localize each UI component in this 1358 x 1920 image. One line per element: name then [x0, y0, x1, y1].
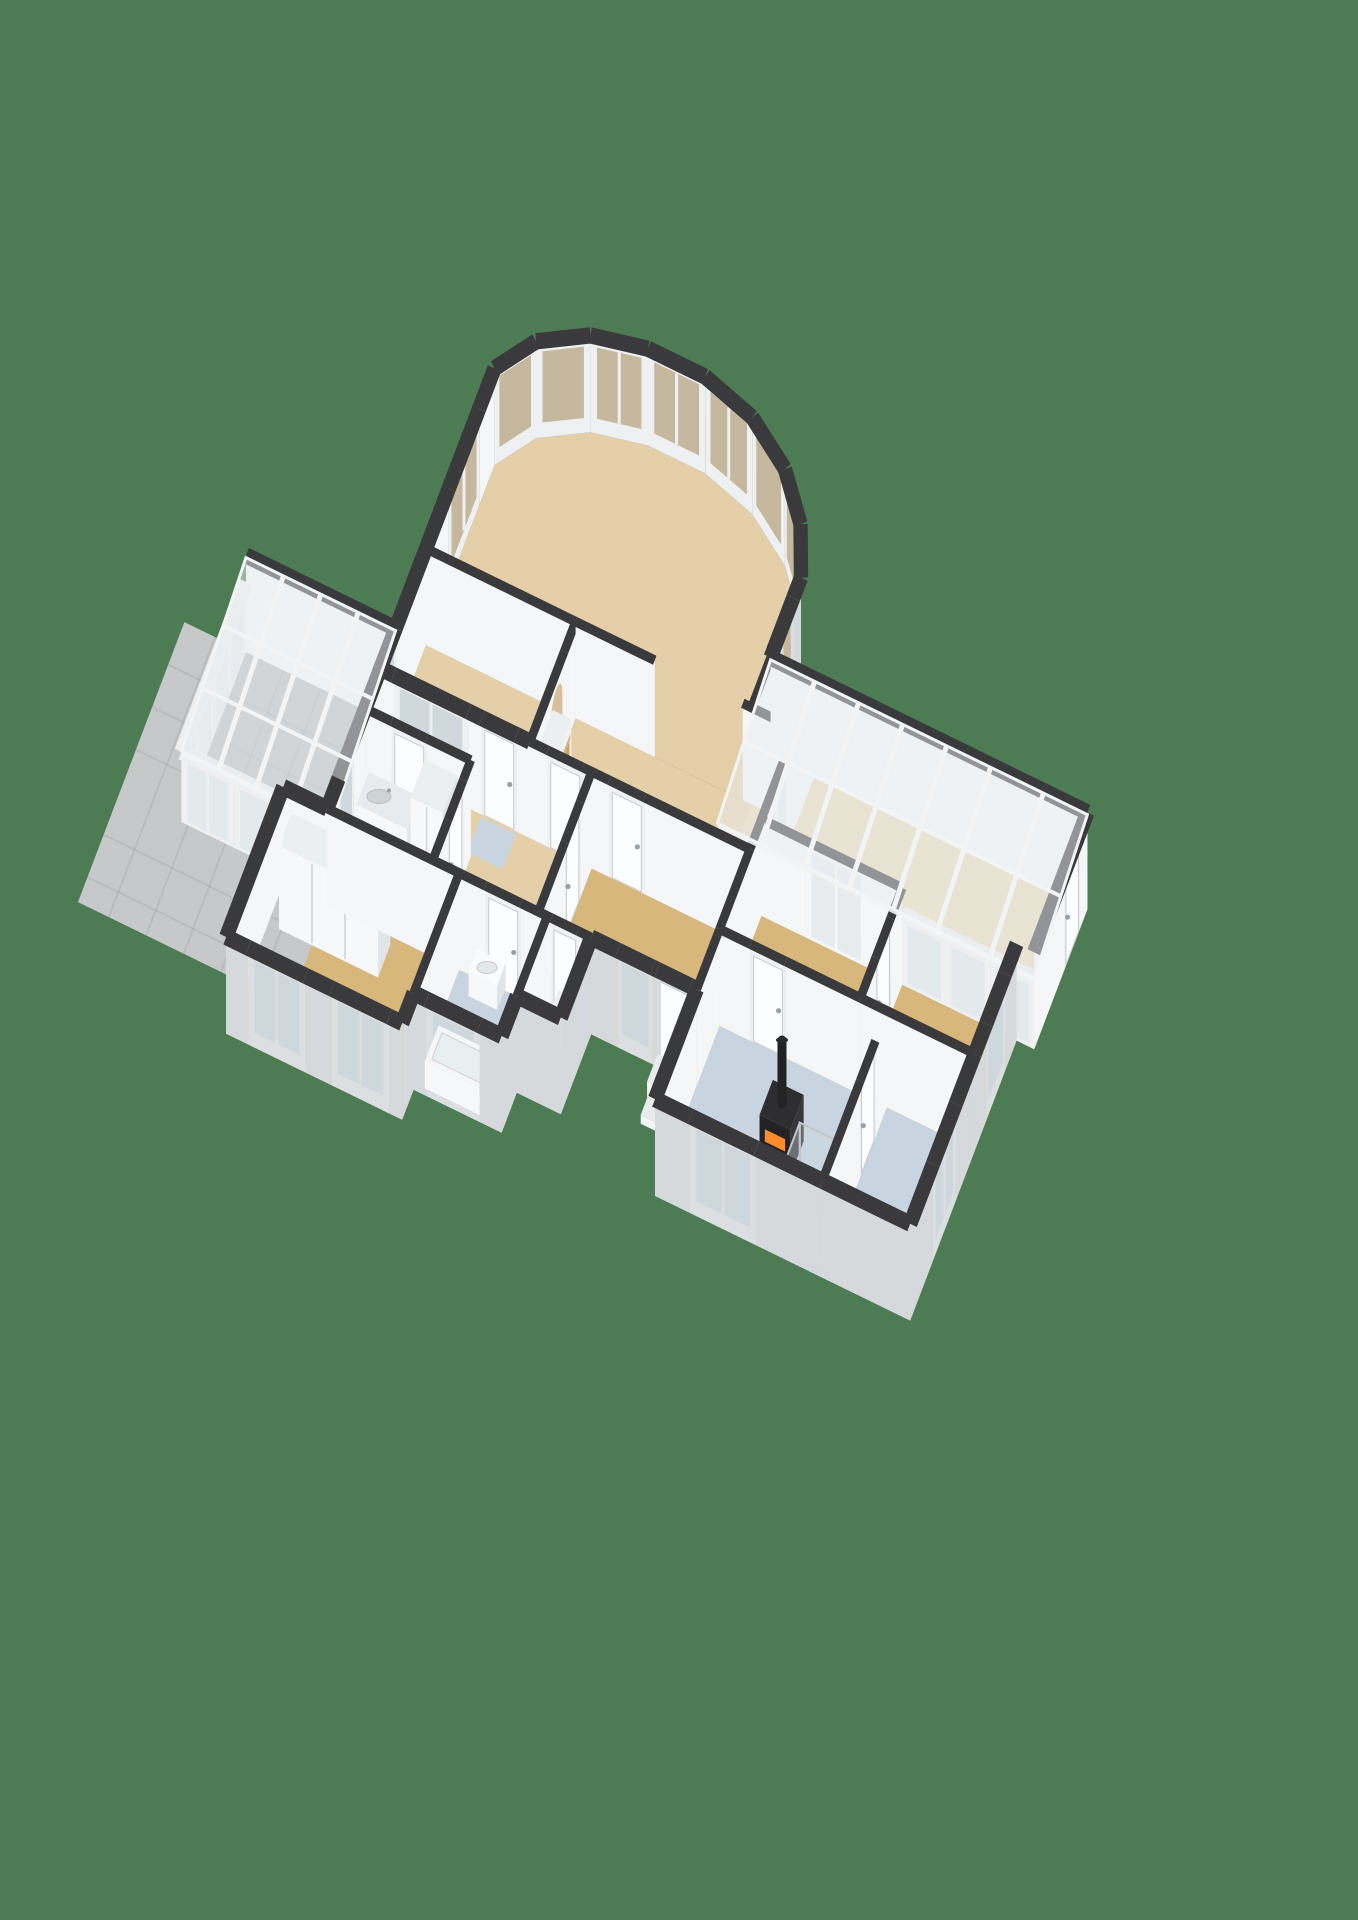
door-handle [507, 782, 512, 787]
door-handle [861, 1123, 866, 1128]
door-leaf [485, 730, 514, 829]
door-handle [1065, 915, 1070, 920]
floorplan-3d-render [0, 0, 1358, 1920]
wall-s [653, 968, 657, 1067]
wall-top [793, 524, 808, 578]
door-handle [776, 1008, 781, 1013]
window-glass [622, 963, 649, 1047]
window-glass [543, 347, 584, 423]
door-leaf [612, 792, 641, 891]
door-handle [511, 950, 516, 955]
door-handle [635, 844, 640, 849]
wall-s [517, 735, 530, 838]
faucet-icon [387, 788, 391, 792]
door-handle [565, 884, 570, 889]
floorplan-3d-view [0, 0, 1358, 1920]
wall-s [389, 1017, 402, 1120]
basin-bowl [477, 962, 497, 974]
wall-s [530, 742, 548, 847]
chimney-cap [776, 1037, 788, 1043]
